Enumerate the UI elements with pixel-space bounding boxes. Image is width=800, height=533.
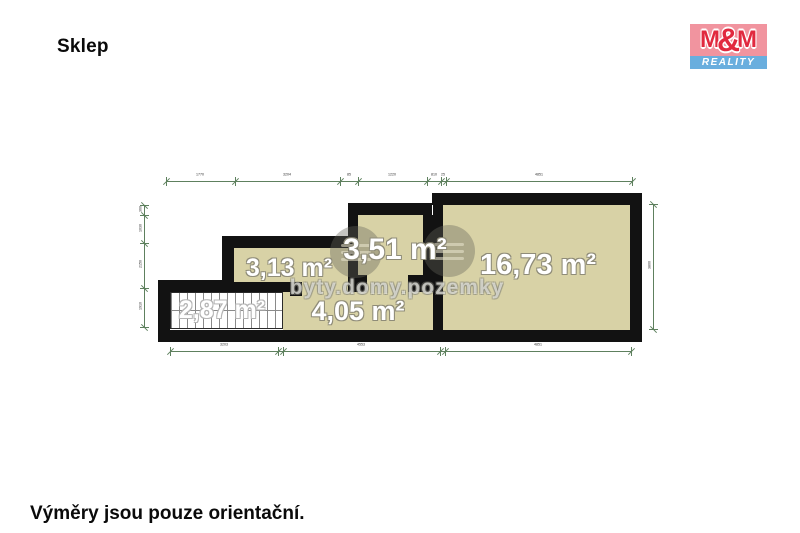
floor-plan: byty.domy.pozemky 2,87 m² 3,13 m² 3,51 m… [0, 0, 800, 533]
dimension-value: 1220 [386, 173, 398, 177]
dimension-value: 3204 [281, 173, 293, 177]
dimension-value: 1770 [194, 173, 206, 177]
dimension-value: 4851 [532, 343, 544, 347]
dimension-value: 4851 [533, 173, 545, 177]
dimension-value: 3203 [218, 343, 230, 347]
dimension-value: 4553 [355, 343, 367, 347]
dimension-value: 2150 [139, 258, 143, 270]
logo-ampersand-icon: & [717, 24, 740, 56]
dimension-value: 1030 [139, 222, 143, 234]
dimension-value: 360 [139, 203, 143, 215]
dimension-value: 1910 [139, 300, 143, 312]
dimension-value: 3800 [648, 259, 652, 271]
floor-plan-page: Sklep M & M REALITY [0, 0, 800, 533]
dimension-value: 25 [437, 173, 449, 177]
footer-note: Výměry jsou pouze orientační. [30, 503, 305, 525]
dimension-value: 85 [343, 173, 355, 177]
dimension-lines: 1770320485122081025485132034553485136010… [0, 0, 800, 533]
